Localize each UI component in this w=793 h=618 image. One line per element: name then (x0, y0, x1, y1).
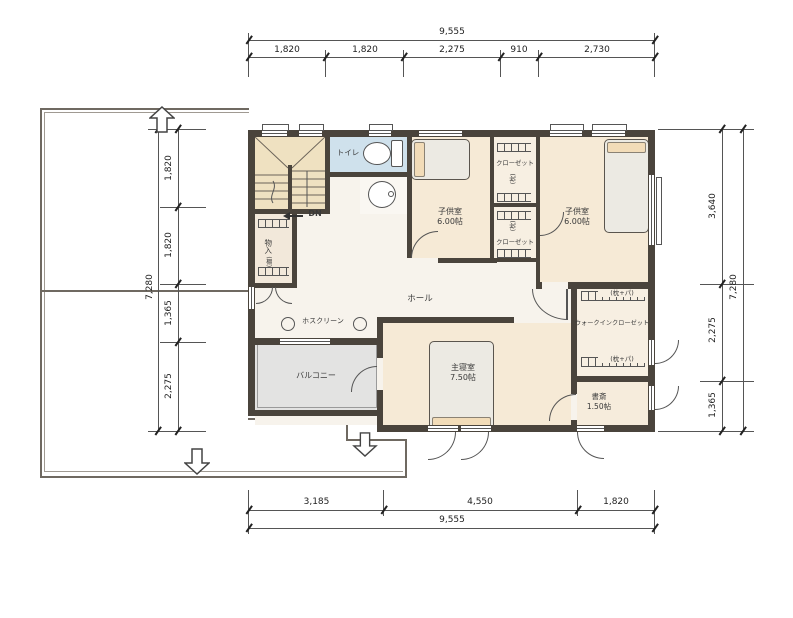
roof-outline-line (44, 112, 45, 472)
storage-label-text: 物入 (264, 239, 273, 254)
wall-segment (407, 137, 412, 258)
laundry-pole-mount (353, 317, 367, 331)
room-name: 書斎 (564, 392, 634, 402)
dim-line (248, 528, 655, 529)
dim-tick (652, 523, 659, 532)
window (648, 340, 655, 365)
window (428, 425, 458, 432)
extension-line (658, 431, 754, 432)
roof-outline-line (44, 471, 403, 472)
dim-label: 1,365 (164, 291, 174, 335)
window (419, 130, 462, 137)
dim-label: 2,275 (164, 364, 174, 408)
wall-segment (571, 289, 577, 382)
window-swing-arc (655, 386, 679, 410)
window-frame (299, 124, 324, 131)
window (592, 130, 625, 137)
closet-pipe-symbol (497, 143, 531, 152)
window-swing-arc (577, 432, 604, 459)
balcony-label: バルコニー (283, 371, 349, 381)
window (262, 130, 287, 137)
dim-label: 1,820 (579, 497, 653, 507)
window (648, 175, 655, 245)
dim-label: 2,730 (539, 45, 655, 55)
wall-segment (490, 203, 540, 207)
wall-segment (568, 282, 655, 289)
laundry-pole-mount (281, 317, 295, 331)
window-frame (656, 177, 662, 245)
pillow (414, 142, 425, 177)
extension-line (700, 381, 754, 382)
dim-label-total-bottom: 9,555 (419, 515, 485, 525)
window-swing-arc (461, 432, 489, 460)
extension-line (700, 284, 754, 285)
door-leaf (566, 289, 568, 320)
room-size: 6.00帖 (410, 217, 490, 227)
toilet-label: トイレ (330, 148, 366, 158)
kids-room-right-label: 子供室 6.00帖 (537, 207, 617, 228)
down-arrow-icon (184, 448, 210, 475)
roof-outline-line (40, 108, 249, 110)
room-name: 子供室 (410, 207, 490, 217)
roof-outline-line (40, 108, 42, 478)
roof-outline-line (405, 439, 407, 478)
window (248, 287, 255, 309)
dim-label-total-left: 7,280 (145, 265, 155, 309)
room-name: 子供室 (537, 207, 617, 217)
laundry-pole-label: ホスクリーン (294, 317, 352, 326)
dim-label: 3,640 (708, 184, 718, 228)
wall-segment (536, 282, 542, 289)
dim-label: 1,820 (250, 45, 324, 55)
window (648, 386, 655, 410)
room-size: 6.00帖 (537, 217, 617, 227)
master-bedroom-label: 主寝室 7.50帖 (421, 363, 505, 384)
hall-label: ホール (393, 294, 447, 305)
window-frame (262, 124, 289, 131)
window (577, 425, 604, 432)
closet-lower-note: (枕) (510, 215, 518, 237)
wall-segment (490, 258, 540, 262)
floor-plan-drawing: 9,555 1,820 1,820 2,275 910 2,730 3,185 … (0, 0, 793, 618)
window-frame (550, 124, 584, 131)
toilet-tank (391, 140, 403, 167)
walk-in-closet-label: ウォークインクローゼット (574, 320, 650, 328)
up-arrow-icon (149, 106, 175, 133)
kids-room-left-label: 子供室 6.00帖 (410, 207, 490, 228)
closet-pipe-symbol (497, 193, 531, 202)
storage-note: (棚) (265, 256, 272, 267)
room-name: 主寝室 (421, 363, 505, 373)
dim-label: 2,275 (406, 45, 498, 55)
window (550, 130, 582, 137)
dim-label: 1,820 (328, 45, 402, 55)
roof-outline-line (44, 112, 249, 113)
wall-segment (248, 338, 280, 345)
wall-segment (377, 390, 383, 425)
dim-label: 1,365 (708, 383, 718, 427)
wall-segment (248, 130, 255, 416)
closet-upper-note: (枕) (510, 168, 518, 190)
dim-line (158, 130, 159, 432)
wall-segment (377, 425, 655, 432)
dim-line (248, 40, 655, 41)
dim-tick (652, 35, 659, 44)
dim-line (743, 130, 744, 432)
room-size: 1.50帖 (564, 402, 634, 412)
wall-segment (292, 214, 297, 283)
dn-arrow-line (289, 215, 303, 217)
window-frame (369, 124, 393, 131)
wall-segment (330, 338, 383, 345)
window-frame (592, 124, 627, 131)
study-label: 書斎 1.50帖 (564, 392, 634, 412)
extension-line (658, 129, 754, 130)
dim-label-total-top: 9,555 (419, 27, 485, 37)
window (280, 338, 330, 345)
wall-segment (377, 317, 514, 323)
storage-label: 物入 (棚) (263, 224, 273, 282)
dim-label: 1,820 (164, 223, 174, 267)
dim-label: 3,185 (250, 497, 383, 507)
roof-outline-line (40, 476, 407, 478)
window-swing-arc (655, 340, 679, 364)
window-swing-arc (428, 432, 456, 460)
dim-label: 2,275 (708, 308, 718, 352)
window (369, 130, 391, 137)
extension-line (160, 284, 206, 285)
extension-line (160, 342, 206, 343)
dim-label-total-right: 7,280 (729, 265, 739, 309)
dn-arrow-head (283, 212, 290, 220)
wall-segment (438, 258, 497, 263)
wic-shelf-note-top: (枕+パ) (598, 289, 646, 297)
toilet-bowl (363, 142, 391, 165)
dim-label: 910 (500, 45, 538, 55)
closet-lower-label: クローゼット (491, 239, 539, 247)
wall-segment (571, 376, 655, 382)
wic-shelf-note-bottom: (枕+パ) (598, 355, 646, 363)
dn-label: DN (303, 209, 327, 219)
extension-line (160, 207, 206, 208)
dim-line (248, 510, 655, 511)
down-arrow-icon (352, 432, 378, 457)
stairs-diagram (255, 137, 325, 209)
window (461, 425, 491, 432)
closet-pipe-symbol (497, 249, 531, 258)
room-size: 7.50帖 (421, 373, 505, 383)
wall-segment (248, 410, 383, 416)
washbasin-drain (388, 191, 394, 197)
dim-label: 1,820 (164, 146, 174, 190)
dim-line (248, 57, 655, 58)
dim-label: 4,550 (385, 497, 575, 507)
wall-segment (329, 172, 407, 177)
pillow (607, 142, 646, 153)
window (299, 130, 322, 137)
